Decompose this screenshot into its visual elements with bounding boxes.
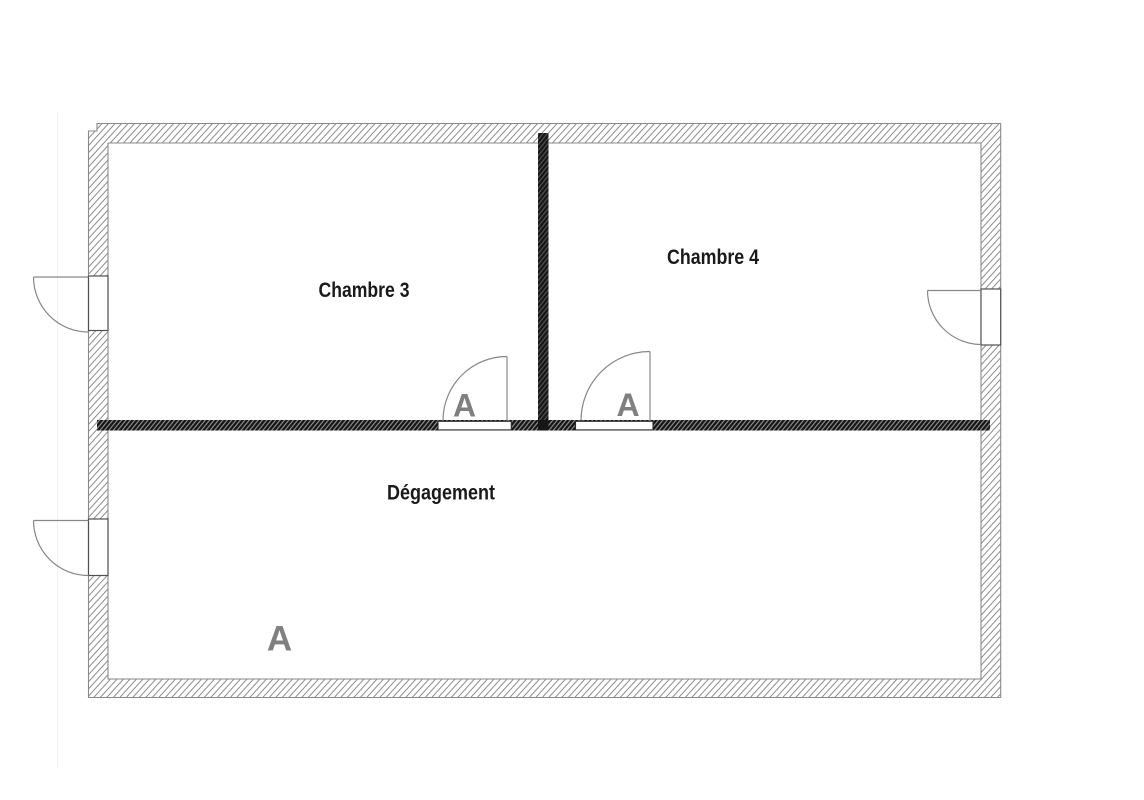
svg-text:A: A [453, 388, 476, 424]
svg-text:Dégagement: Dégagement [387, 481, 495, 505]
svg-text:Chambre 3: Chambre 3 [319, 278, 410, 302]
svg-text:A: A [267, 620, 292, 659]
svg-text:A: A [616, 387, 639, 423]
svg-text:Chambre 4: Chambre 4 [667, 245, 759, 269]
